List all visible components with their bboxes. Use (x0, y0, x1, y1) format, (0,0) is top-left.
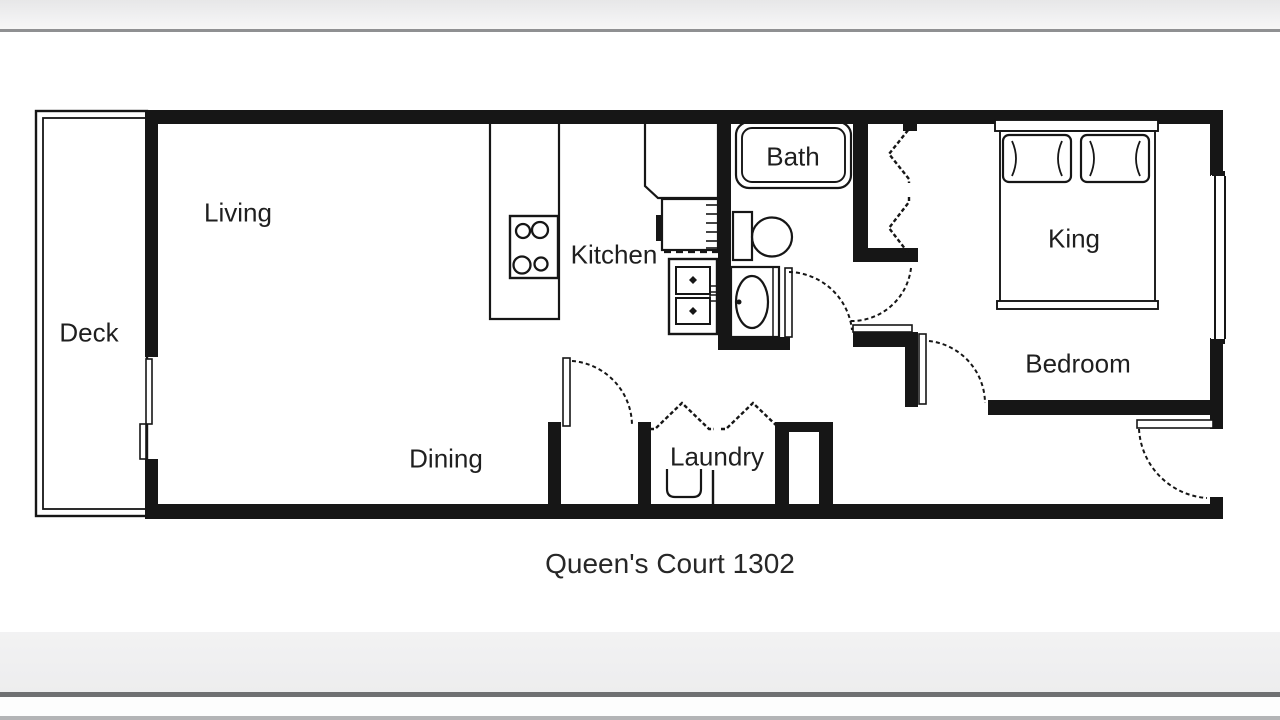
wall-utility-closet-right (819, 422, 833, 507)
bottom-letterbox-bar (0, 716, 1280, 720)
room-label-bath: Bath (766, 142, 820, 173)
wall-bath-south (718, 337, 790, 350)
king-bed-icon (995, 120, 1158, 309)
room-label-kitchen: Kitchen (571, 240, 658, 271)
deck-outline (36, 111, 147, 516)
wall-kitchen-bath (718, 110, 731, 350)
wall-laundry-left (638, 422, 651, 507)
king-bed-label: King (1048, 224, 1100, 255)
bottom-gray-band (0, 632, 1280, 692)
entry-door (1137, 420, 1213, 498)
screenshot-root: Deck Living Kitchen Dining Laundry Bath … (0, 0, 1280, 720)
door-swing-icon (849, 268, 911, 321)
washer-icon (667, 469, 713, 505)
wall-laundry-right (775, 422, 789, 507)
bifold-closet-doors-icon (889, 124, 909, 254)
kitchen-counter-icon (490, 122, 559, 319)
wall-east-lower (1210, 497, 1223, 519)
room-label-living: Living (204, 198, 272, 229)
bottom-white-strip (0, 697, 1280, 716)
wall-east-mid (1210, 338, 1223, 429)
vanity-sink-icon (731, 267, 779, 337)
pillow (1081, 135, 1149, 182)
bed-footboard (997, 301, 1158, 309)
cabinet-icon (645, 122, 718, 198)
bedroom-door (919, 334, 985, 404)
wall-bedroom-south (988, 400, 1223, 415)
door-swing-icon (1139, 429, 1207, 498)
room-label-laundry: Laundry (670, 442, 764, 473)
refrigerator-icon (656, 199, 719, 252)
kitchen-double-sink-icon (669, 259, 718, 334)
wall-living-west-upper (145, 110, 158, 357)
door-swing-icon (572, 361, 632, 426)
hall-door (849, 268, 912, 332)
bathroom-door (785, 268, 852, 337)
pillow (1003, 135, 1071, 182)
room-label-dining: Dining (409, 444, 483, 475)
plan-title: Queen's Court 1302 (545, 548, 795, 580)
wall-hall-stub (905, 332, 918, 407)
door-swing-icon (929, 341, 985, 403)
bed-headboard (995, 120, 1158, 131)
wall-east-upper (1210, 110, 1223, 176)
toilet-icon (733, 212, 792, 260)
wall-bath-east (853, 110, 868, 262)
bed-body (1000, 131, 1155, 302)
room-label-deck: Deck (59, 318, 118, 349)
stove-icon (510, 216, 558, 278)
wall-bottom (145, 504, 1223, 519)
wall-living-west-lower (145, 459, 158, 519)
window-icon (1211, 171, 1227, 344)
wall-dining-stub (548, 422, 561, 507)
door-swing-icon (789, 272, 852, 330)
room-label-bedroom: Bedroom (1025, 349, 1131, 380)
wall-utility-closet-top (775, 422, 833, 432)
sliding-glass-door-icon (140, 359, 152, 459)
wall-closet-south (853, 248, 918, 262)
dining-hall-door (563, 358, 632, 426)
laundry-bifold-doors-icon (650, 403, 785, 429)
